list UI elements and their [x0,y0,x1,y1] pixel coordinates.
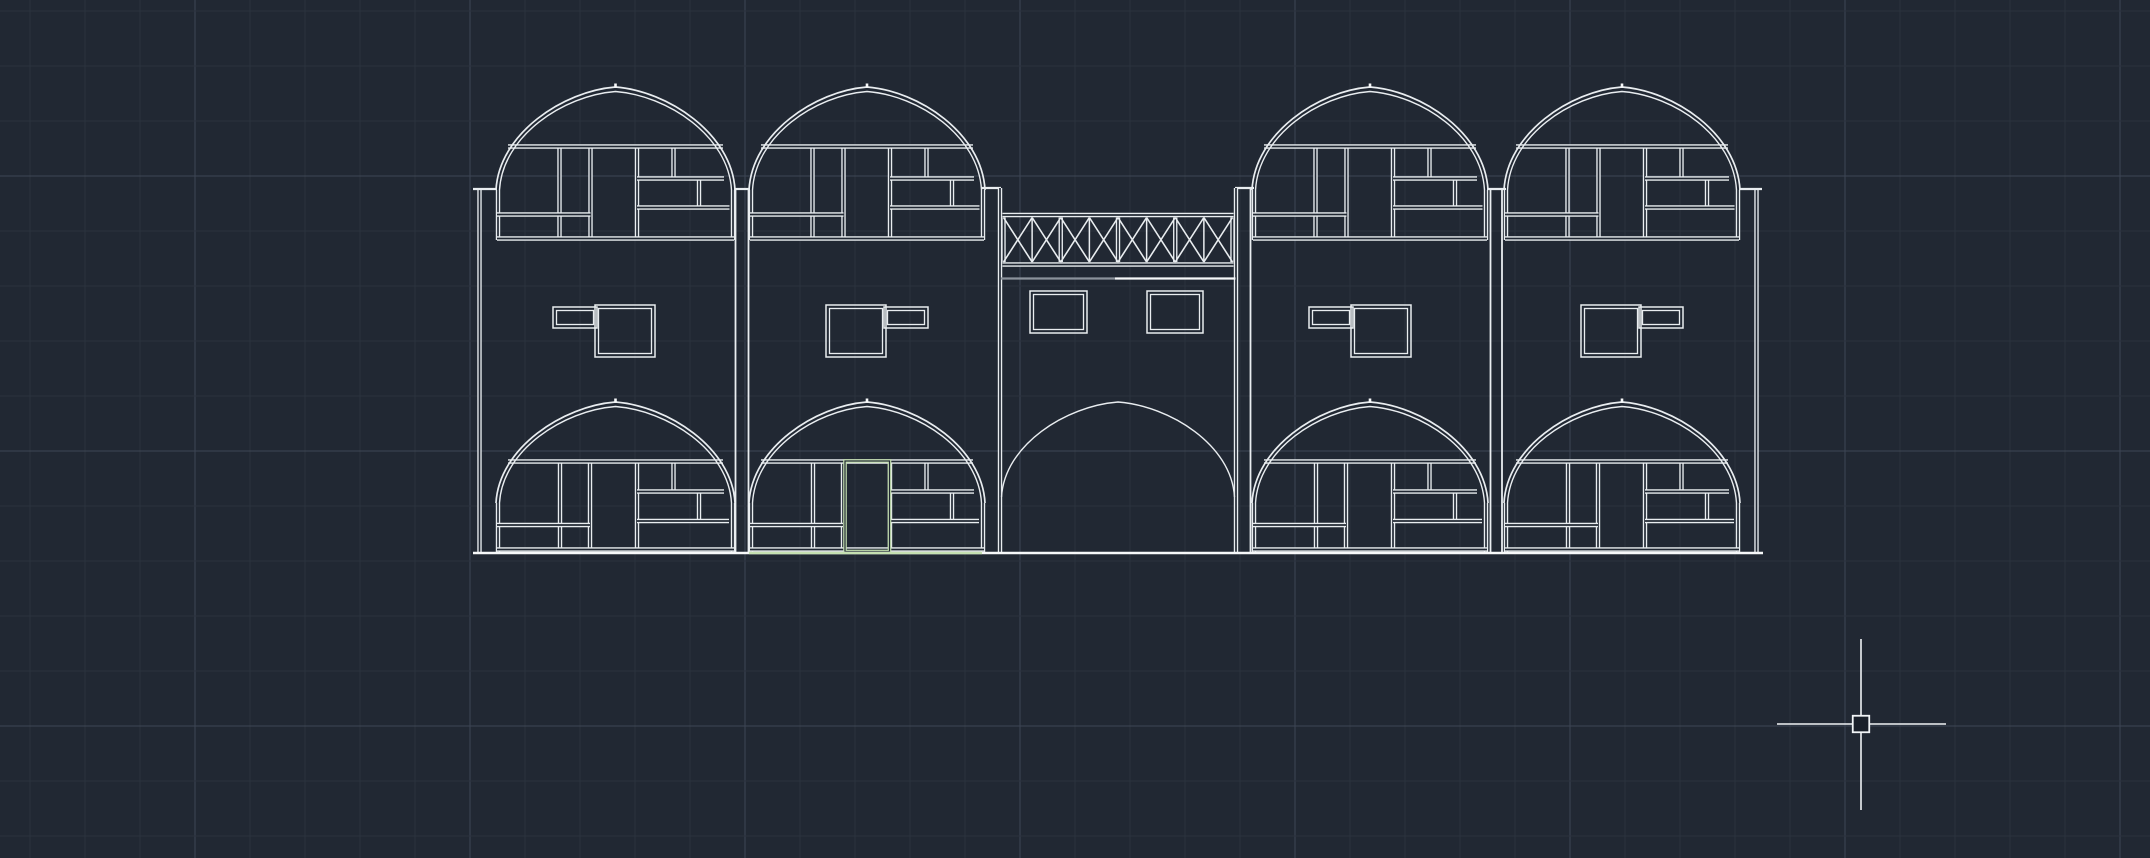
pickbox [1853,716,1870,733]
cad-model-space[interactable] [0,0,2150,858]
drawing-grid [0,0,2150,858]
drawing-canvas[interactable] [0,0,2150,858]
